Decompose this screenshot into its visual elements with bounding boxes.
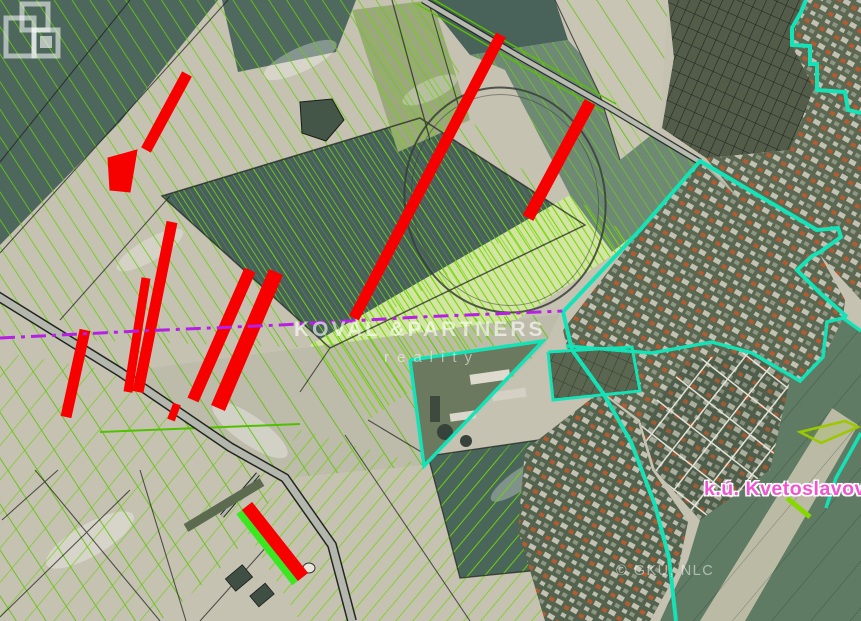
map-canvas[interactable]: KOVAL &PARTNERS reality k.ú. Kvetoslavov… — [0, 0, 861, 621]
highlighted-parcel[interactable] — [171, 404, 177, 420]
map-image — [0, 0, 861, 621]
